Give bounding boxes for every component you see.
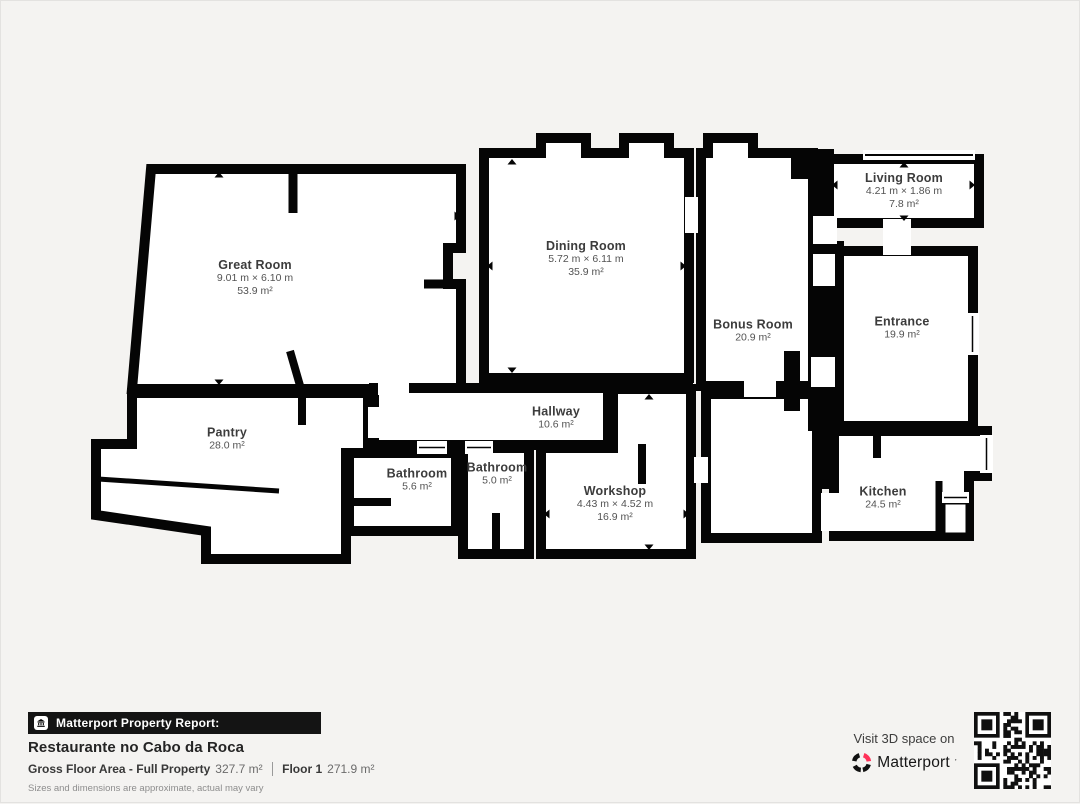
floor-area-metrics: Gross Floor Area - Full Property 327.7 m… [28, 762, 375, 776]
room-shape-pantry [96, 393, 368, 559]
disclaimer-text: Sizes and dimensions are approximate, ac… [28, 783, 264, 794]
building-icon [34, 716, 48, 730]
report-bar: Matterport Property Report: [28, 712, 321, 734]
gross-floor-area-value: 327.7 m² [215, 762, 262, 776]
qr-code [974, 712, 1051, 789]
room-shape-kitchen-closet [942, 501, 969, 536]
matterport-brand-row: Matterport ’ [839, 752, 969, 773]
matterport-wordmark: Matterport [877, 754, 950, 772]
floorplan-svg [1, 1, 1080, 804]
matterport-logo-icon [851, 752, 872, 773]
visit-3d-cta: Visit 3D space on Matterport ’ [839, 731, 969, 773]
room-shape-entrance [839, 251, 973, 426]
gross-floor-area-label: Gross Floor Area - Full Property [28, 762, 210, 776]
property-title: Restaurante no Cabo da Roca [28, 739, 244, 756]
floor-label: Floor 1 [282, 762, 322, 776]
report-bar-label: Matterport Property Report: [56, 716, 219, 730]
metrics-divider [272, 762, 274, 776]
room-shape-living-room [829, 159, 979, 223]
trademark-tick: ’ [955, 758, 957, 768]
room-shape-hallway [374, 388, 608, 445]
floor-plan-page: Great Room 9.01 m × 6.10 m 53.9 m² Dinin… [0, 0, 1080, 803]
room-shape-corridor [706, 394, 817, 538]
floor-area-value: 271.9 m² [327, 762, 374, 776]
room-shapes [96, 138, 987, 559]
room-shape-dining-room [484, 138, 689, 378]
room-shape-bathroom-1 [349, 453, 456, 531]
visit-text: Visit 3D space on [839, 731, 969, 746]
